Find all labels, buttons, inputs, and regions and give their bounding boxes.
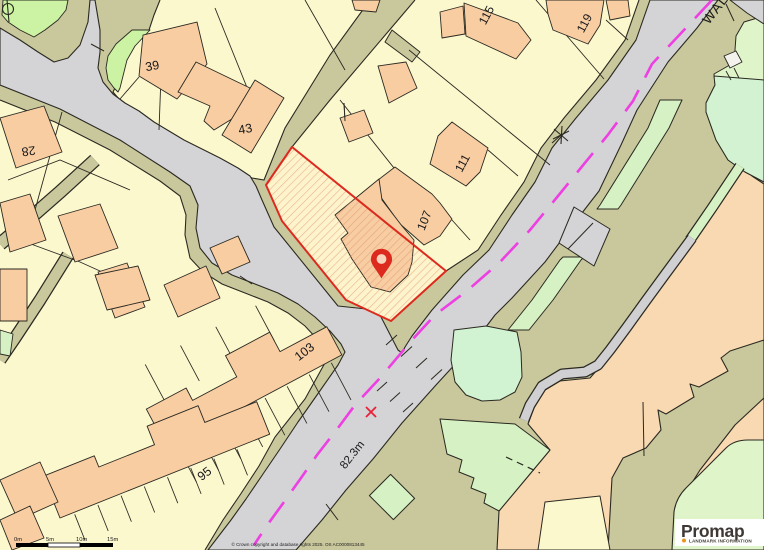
svg-text:43: 43: [237, 121, 253, 137]
svg-text:LANDMARK INFORMATION: LANDMARK INFORMATION: [689, 538, 752, 543]
svg-text:15m: 15m: [107, 537, 118, 543]
svg-text:39: 39: [144, 58, 160, 74]
svg-text:28: 28: [21, 143, 37, 159]
svg-text:5m: 5m: [46, 537, 54, 543]
svg-text:0m: 0m: [14, 537, 22, 543]
svg-text:10m: 10m: [76, 537, 87, 543]
svg-text:© Crown copyright and database: © Crown copyright and database rights 20…: [231, 541, 365, 547]
